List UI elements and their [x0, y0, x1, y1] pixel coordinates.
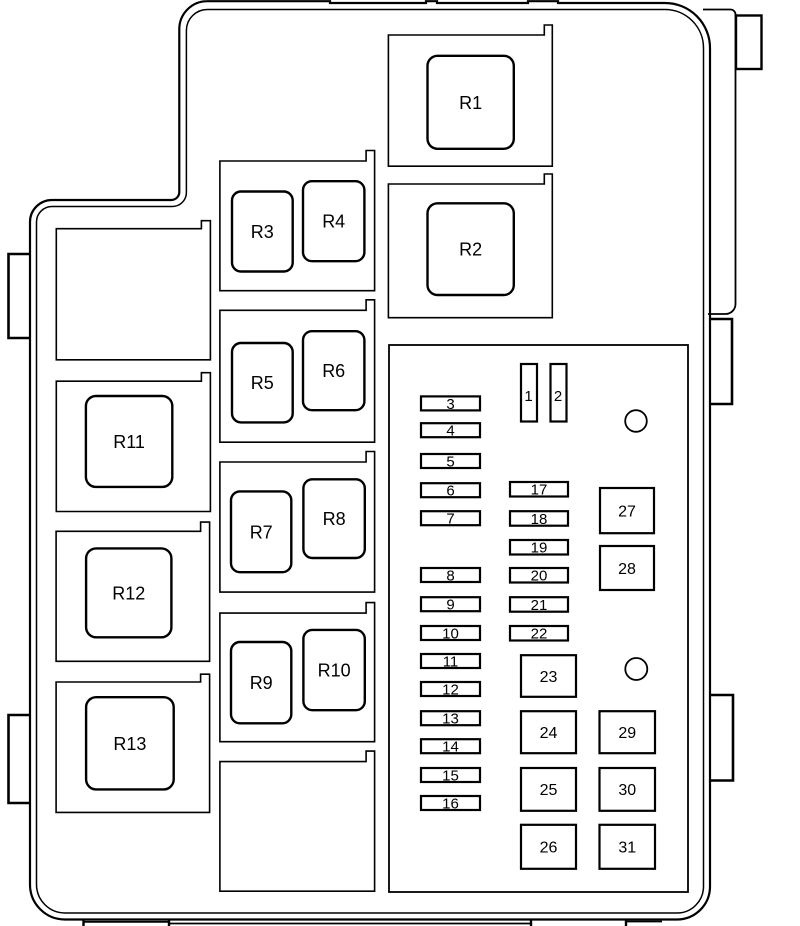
- svg-text:4: 4: [446, 423, 454, 440]
- svg-text:25: 25: [540, 782, 558, 799]
- svg-text:9: 9: [446, 597, 454, 614]
- svg-text:31: 31: [618, 840, 636, 857]
- svg-text:R10: R10: [318, 660, 351, 680]
- svg-text:3: 3: [446, 396, 454, 413]
- svg-text:19: 19: [531, 540, 548, 557]
- svg-text:5: 5: [446, 453, 454, 470]
- svg-text:11: 11: [443, 653, 459, 670]
- svg-text:R12: R12: [112, 583, 145, 603]
- svg-text:R8: R8: [323, 509, 346, 529]
- svg-text:R1: R1: [459, 93, 482, 113]
- svg-text:15: 15: [442, 767, 459, 784]
- svg-text:8: 8: [446, 567, 454, 584]
- svg-text:R5: R5: [251, 373, 274, 393]
- svg-text:1: 1: [524, 388, 532, 405]
- svg-text:10: 10: [442, 625, 459, 642]
- svg-text:R9: R9: [250, 673, 273, 693]
- svg-text:21: 21: [531, 597, 548, 614]
- svg-text:R3: R3: [251, 222, 274, 242]
- svg-text:26: 26: [540, 840, 558, 857]
- svg-text:29: 29: [618, 725, 636, 742]
- svg-text:16: 16: [442, 795, 459, 812]
- svg-text:R2: R2: [459, 240, 482, 260]
- svg-text:14: 14: [442, 739, 459, 756]
- svg-text:R11: R11: [113, 432, 145, 452]
- svg-text:R13: R13: [113, 734, 146, 754]
- svg-text:28: 28: [618, 561, 636, 578]
- svg-text:24: 24: [540, 725, 558, 742]
- svg-text:12: 12: [442, 681, 459, 698]
- svg-text:13: 13: [442, 711, 459, 728]
- svg-text:18: 18: [531, 511, 548, 528]
- svg-text:30: 30: [618, 782, 636, 799]
- svg-text:20: 20: [531, 568, 548, 585]
- svg-text:R4: R4: [322, 212, 345, 232]
- svg-text:7: 7: [446, 511, 454, 528]
- svg-text:22: 22: [531, 626, 548, 643]
- svg-text:R7: R7: [250, 522, 273, 542]
- svg-text:2: 2: [554, 388, 562, 405]
- svg-text:6: 6: [446, 483, 454, 500]
- svg-text:17: 17: [531, 482, 548, 499]
- svg-text:27: 27: [618, 503, 636, 520]
- svg-text:R6: R6: [322, 361, 345, 381]
- svg-text:23: 23: [540, 669, 558, 686]
